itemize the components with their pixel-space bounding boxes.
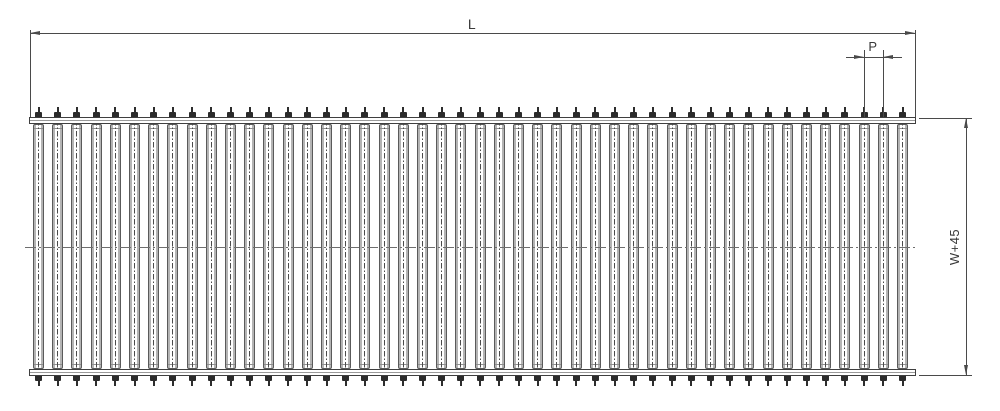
length-dimension-label: L xyxy=(442,17,502,31)
length-arrow-right-icon xyxy=(905,31,915,35)
width-arrow-down-icon xyxy=(964,365,968,375)
frame-rail-top xyxy=(29,117,916,124)
frame-rail-bottom xyxy=(29,369,916,376)
conveyor-technical-drawing: L P W+45 xyxy=(0,0,1000,411)
width-extension-line-bottom xyxy=(919,375,972,376)
length-dimension-line xyxy=(30,33,915,34)
pitch-extension-line-right xyxy=(883,50,884,117)
horizontal-centerline xyxy=(25,247,916,248)
width-dimension-label: W+45 xyxy=(948,217,964,277)
pitch-extension-line-left xyxy=(864,50,865,117)
length-extension-line-right xyxy=(915,30,916,117)
pitch-arrow-right-icon xyxy=(883,55,893,59)
width-dimension-line xyxy=(966,118,967,375)
pitch-arrow-left-icon xyxy=(854,55,864,59)
width-arrow-up-icon xyxy=(964,118,968,128)
length-extension-line-left xyxy=(30,30,31,117)
pitch-dimension-label: P xyxy=(843,40,903,54)
length-arrow-left-icon xyxy=(30,31,40,35)
